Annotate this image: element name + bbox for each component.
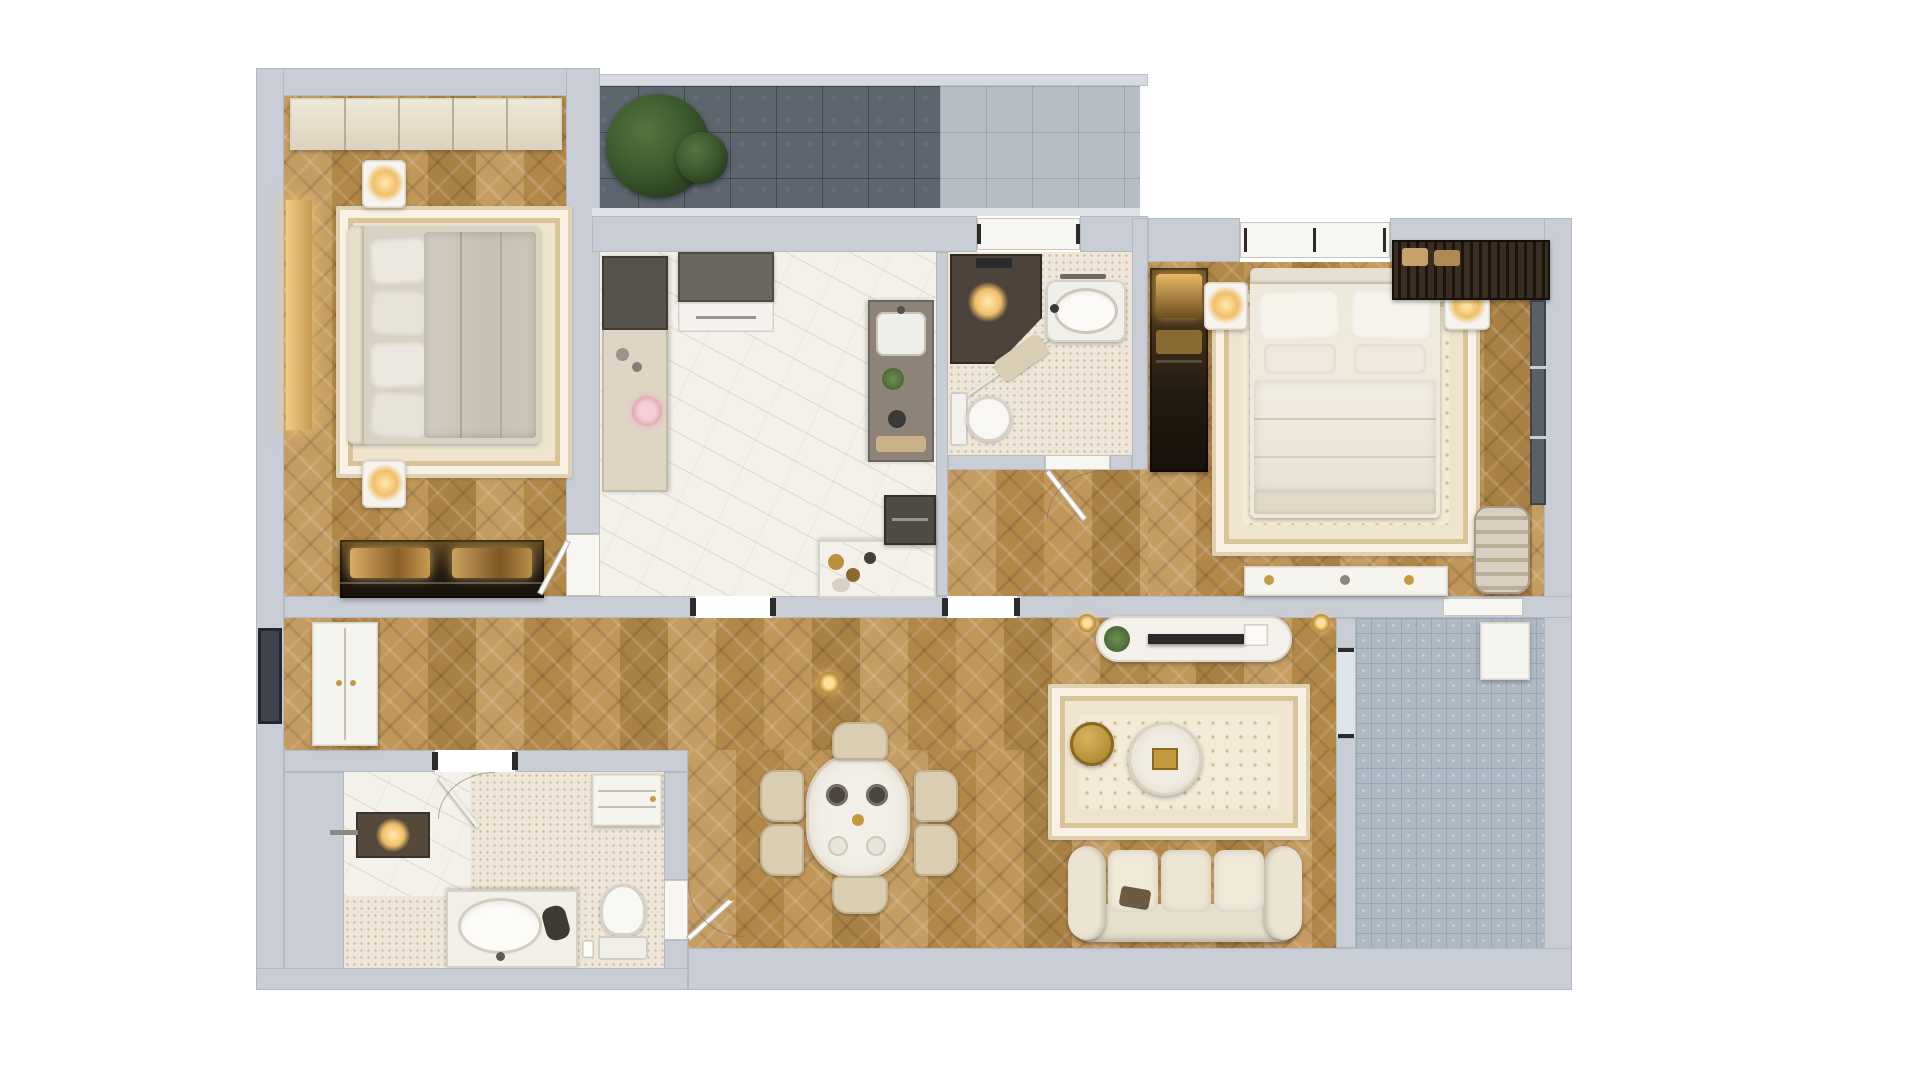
bathroom2-dark-tray: [540, 903, 572, 942]
closet-divider: [506, 98, 508, 150]
kitchen-plant-pot: [882, 368, 904, 390]
shelf-towel: [1402, 248, 1428, 266]
kitchen-flower-bouquet: [632, 396, 662, 426]
bed1-pillow: [369, 289, 429, 337]
kitchen-left-counter-appliance: [602, 256, 668, 330]
wall-kitchen-right: [936, 252, 948, 596]
vestibule-door-frame-l: [942, 598, 948, 616]
bathroom2-vanity: [446, 890, 578, 968]
wall-bathroom1-bottom-a: [948, 455, 1045, 470]
wall-bathroom2-left: [284, 772, 344, 990]
bed2-pillow-small: [1354, 344, 1426, 374]
balcony-sill: [592, 208, 1140, 216]
vanity-item: [1264, 575, 1274, 585]
floor-plan: [0, 0, 1920, 1080]
window-mullion: [1530, 436, 1546, 439]
bedroom1-lamp-bottom: [366, 464, 404, 502]
bedroom2-side-window: [1530, 300, 1546, 505]
bedroom2-lamp-left: [1207, 286, 1245, 324]
island-handle: [696, 316, 756, 319]
kitchen-left-counter: [602, 256, 668, 492]
closet-divider: [344, 98, 346, 150]
dining-plate: [866, 836, 886, 856]
dining-chair-left-2: [760, 824, 804, 876]
bedroom2-balcony-door: [1443, 598, 1523, 616]
bed1-duvet-fold: [500, 232, 502, 438]
kitchen-island-front: [678, 302, 774, 332]
bathroom2-shower-light: [376, 818, 410, 852]
wall-left: [256, 68, 284, 990]
bathroom2-faucet: [496, 952, 505, 961]
wall-bedroom2-top-a: [1148, 218, 1240, 262]
bathroom2-door-frame-l: [432, 752, 438, 770]
kitchen-door-frame-r: [770, 598, 776, 616]
linen-cabinet-line: [598, 790, 656, 792]
dining-chair-left-1: [760, 770, 804, 822]
closet-divider: [452, 98, 454, 150]
kitchen-sink: [876, 312, 926, 356]
kitchen-right-counter: [868, 300, 934, 462]
bathroom1-window-frame-r: [1076, 224, 1080, 244]
coffee-table-gold: [1070, 722, 1114, 766]
linen-cabinet-line: [598, 806, 656, 808]
wall-top-left: [256, 68, 592, 96]
kitchen-door-frame-l: [690, 598, 696, 616]
bed1-headboard: [348, 226, 364, 444]
closet-divider: [398, 98, 400, 150]
coffee-jar-dark: [864, 552, 876, 564]
balcony-plant-small: [676, 132, 728, 184]
balcony-top-floor-light: [940, 86, 1140, 216]
bathroom2-toilet-tank: [598, 936, 648, 960]
corridor-cabinet: [312, 622, 378, 746]
window-mullion: [1530, 366, 1546, 369]
bed1-pillow: [369, 237, 429, 286]
wardrobe2-shelf: [1156, 330, 1202, 354]
bathroom2-linen-cabinet: [592, 774, 662, 826]
sofa-arm-left: [1068, 846, 1106, 940]
pendant-lamp-left: [1078, 614, 1096, 632]
dining-gold-item: [852, 814, 864, 826]
wardrobe2-glow: [1156, 274, 1202, 318]
bathroom1-balcony-window: [977, 218, 1080, 250]
dining-chair-right-2: [914, 824, 958, 876]
kitchen-cutting-board: [876, 436, 926, 452]
bathroom1-window-frame-l: [977, 224, 981, 244]
kitchen-dark-bowl: [888, 410, 906, 428]
wall-bottom-left: [256, 968, 688, 990]
entry-door-opening: [664, 880, 688, 940]
pendant-lamp-right: [1312, 614, 1330, 632]
dining-plate: [828, 836, 848, 856]
bedroom2-louver-shelf: [1392, 240, 1550, 300]
living-balcony-glass-door: [1336, 648, 1356, 738]
bedroom1-wall-vanity: [286, 200, 312, 430]
dining-table: [806, 752, 910, 880]
balcony-door-frame-t: [1338, 648, 1354, 652]
wall-bathroom1-right: [1132, 218, 1148, 470]
bathroom2-basin: [458, 898, 542, 954]
corridor-window: [258, 628, 282, 724]
kitchen-item-bowl: [616, 348, 629, 361]
shelf-towel: [1434, 250, 1460, 266]
bed1-duvet-fold: [460, 232, 462, 438]
vanity-item: [1340, 575, 1350, 585]
cabinet-knob: [336, 680, 342, 686]
wall-entry-left-a: [664, 772, 688, 880]
wall-bathroom1-bottom-b: [1110, 455, 1132, 470]
bedroom2-bed: [1250, 268, 1440, 518]
wall-balcony-rail: [592, 74, 1148, 86]
wall-south-main-b: [772, 596, 947, 618]
wardrobe1-clothes: [350, 548, 430, 578]
bathroom1-door-opening: [1045, 455, 1110, 470]
bathroom2-door-frame-r: [512, 752, 518, 770]
balcony-door-frame-b: [1338, 734, 1354, 738]
bathroom2-toilet-bowl: [600, 884, 646, 936]
bed2-duvet-fold: [1254, 418, 1436, 420]
bedroom2-vanity-console: [1244, 566, 1448, 596]
wall-corridor-south-b: [515, 750, 688, 772]
bedroom1-bed: [348, 226, 540, 444]
bathroom1-sink-basin: [1054, 288, 1118, 334]
kitchen-island-top: [678, 252, 774, 302]
wardrobe1-clothes: [452, 548, 532, 578]
wall-bottom-right: [688, 948, 1572, 990]
dining-chair-right-1: [914, 770, 958, 822]
bed2-duvet-fold: [1254, 456, 1436, 458]
bathroom1-faucet: [1060, 274, 1106, 279]
wall-balcony-divider-a: [592, 216, 977, 252]
bathroom1-toilet-bowl: [966, 396, 1012, 442]
bedroom2-window-tick2: [1313, 228, 1316, 252]
bathroom2-waste-bin: [582, 940, 594, 958]
bathroom1-shower-head: [976, 258, 1012, 268]
bedroom1-door-opening: [566, 534, 600, 596]
sofa-cushion: [1161, 850, 1211, 912]
bedroom2-window-tick1: [1244, 228, 1247, 252]
console-plant: [1104, 626, 1130, 652]
kitchen-item-bowl: [632, 362, 642, 372]
bathroom2-shower-arm: [330, 830, 358, 835]
bathroom1-sink-counter: [1046, 280, 1126, 342]
bathroom1-shower-light: [968, 282, 1008, 322]
dining-cup: [866, 784, 888, 806]
bed1-duvet: [424, 232, 536, 438]
sofa-cushion: [1214, 850, 1264, 912]
cabinet-door-line: [344, 628, 346, 740]
cabinet-knob: [350, 680, 356, 686]
appliance-steel-line: [892, 518, 928, 521]
tv-panel: [1148, 634, 1246, 644]
wardrobe2-shelf: [1156, 360, 1202, 363]
console-white-box: [1244, 624, 1268, 646]
dining-chair-top: [832, 722, 888, 760]
wall-living-right-a: [1336, 618, 1356, 648]
kitchen-faucet: [897, 306, 905, 314]
kitchen-dark-appliance: [884, 495, 936, 545]
bedroom2-corner-chair: [1474, 506, 1530, 594]
bedroom1-builtin-closet: [290, 98, 562, 150]
bed2-foot-runner: [1254, 490, 1436, 514]
sofa: [1068, 840, 1302, 944]
dining-pendant-lamp: [818, 672, 840, 694]
bedroom2-window-tick3: [1383, 228, 1386, 252]
vestibule-door-frame-r: [1014, 598, 1020, 616]
coffee-plate: [832, 578, 850, 592]
wall-living-right-b: [1336, 738, 1356, 948]
dining-chair-bottom: [832, 876, 888, 914]
bedroom1-lit-wardrobe: [340, 540, 544, 598]
bedroom2-wardrobe: [1150, 268, 1208, 472]
bed1-pillow: [369, 391, 429, 440]
dining-cup: [826, 784, 848, 806]
bathroom1-soap-dot: [1050, 304, 1059, 313]
wall-corridor-south-a: [284, 750, 435, 772]
vanity-item: [1404, 575, 1414, 585]
bed2-pillow: [1257, 289, 1341, 342]
bed1-pillow: [369, 341, 429, 389]
coffee-table-tray: [1152, 748, 1178, 770]
coffee-table-white: [1128, 722, 1202, 796]
bed2-pillow-small: [1264, 344, 1336, 374]
kitchen-coffee-counter: [818, 540, 936, 598]
coffee-jar-gold: [828, 554, 844, 570]
vestibule-floor: [948, 470, 1148, 596]
wardrobe1-glass-line: [340, 582, 544, 584]
balcony-right-cabinet: [1480, 622, 1530, 680]
wall-south-main-a: [284, 596, 695, 618]
sofa-arm-right: [1264, 846, 1302, 940]
bedroom1-lamp-top: [366, 164, 404, 202]
bed2-duvet: [1254, 380, 1436, 492]
linen-cabinet-knob: [650, 796, 656, 802]
